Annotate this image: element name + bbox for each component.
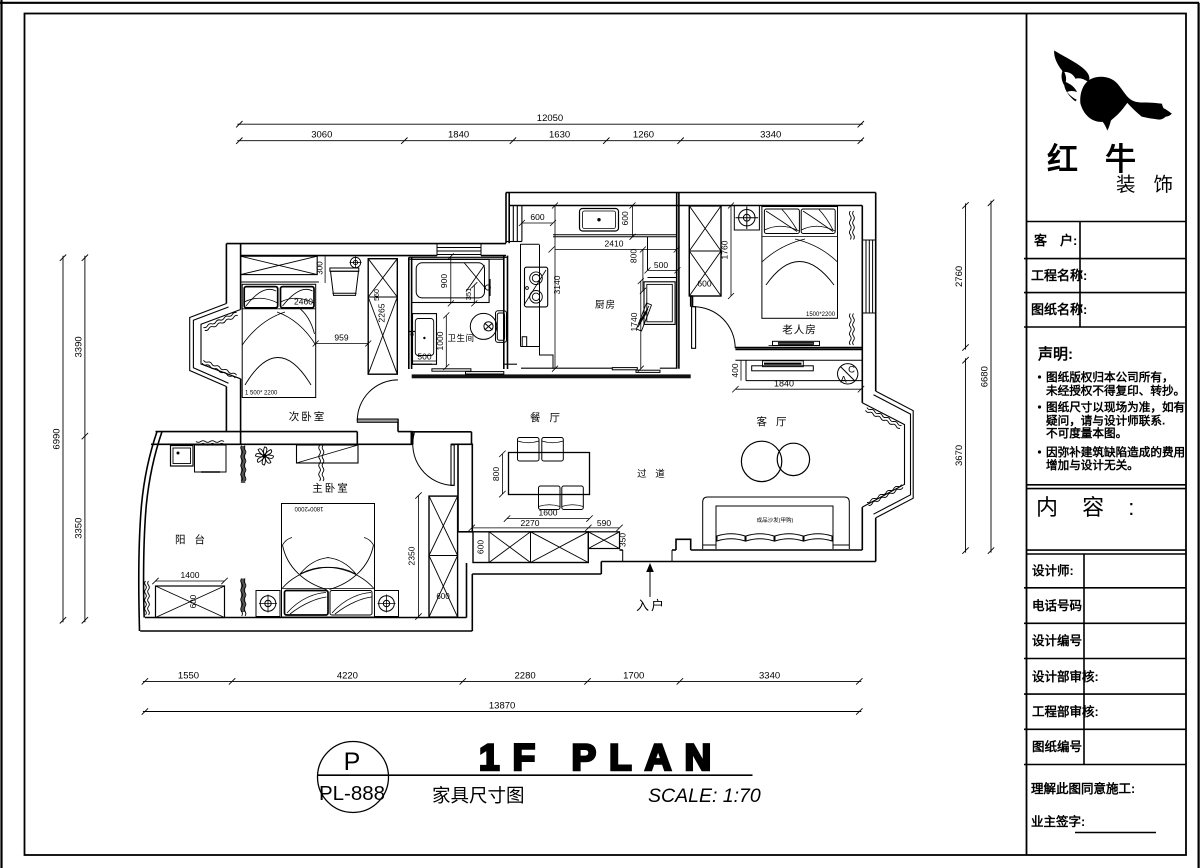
svg-text:900: 900 [439,274,449,288]
svg-text:红牛: 红牛 [1047,142,1163,177]
svg-text:阳 台: 阳 台 [175,533,208,546]
svg-text:600: 600 [476,540,486,554]
svg-text:1630: 1630 [549,130,570,141]
svg-text:4220: 4220 [337,670,358,681]
svg-text:600: 600 [530,212,544,222]
svg-text:800: 800 [628,249,638,263]
svg-text:电话号码: 电话号码 [1032,598,1082,613]
svg-text:主卧室: 主卧室 [312,482,350,495]
svg-text:3350: 3350 [73,518,84,539]
svg-text:300: 300 [316,261,325,275]
svg-text:400: 400 [730,363,740,377]
svg-text:家具尺寸图: 家具尺寸图 [432,785,525,806]
svg-text:1000: 1000 [435,331,445,350]
svg-text:600: 600 [620,211,630,225]
svg-text:装饰: 装饰 [1116,174,1191,196]
svg-text:3670: 3670 [954,445,965,466]
svg-text:声明:: 声明: [1037,345,1073,363]
svg-text:图纸尺寸以现场为准，如有: 图纸尺寸以现场为准，如有 [1046,400,1186,414]
svg-text:1400: 1400 [181,570,200,580]
svg-text:1F PLAN: 1F PLAN [479,737,724,778]
svg-text:因弥补建筑缺陷造成的费用: 因弥补建筑缺陷造成的费用 [1046,445,1185,459]
svg-text:2270: 2270 [521,518,540,528]
svg-text:过 道: 过 道 [637,468,668,480]
svg-text:客 厅: 客 厅 [757,415,790,428]
svg-text:设计部审核:: 设计部审核: [1032,669,1099,684]
svg-text:1700: 1700 [623,670,644,681]
svg-text:疑问，请与设计师联系.: 疑问，请与设计师联系. [1046,414,1165,428]
svg-text:P: P [344,748,361,776]
svg-text:PL-888: PL-888 [319,782,385,805]
svg-text:图纸版权归本公司所有，: 图纸版权归本公司所有， [1046,370,1174,384]
svg-text:12050: 12050 [537,113,563,124]
svg-text:800: 800 [491,467,501,481]
svg-text:600: 600 [697,279,711,289]
svg-text:2460: 2460 [294,297,313,307]
svg-text:6990: 6990 [52,428,63,449]
svg-text:600: 600 [189,594,198,608]
svg-text:设计编号: 设计编号 [1032,633,1082,648]
svg-text:2350: 2350 [407,546,417,565]
svg-text:1600: 1600 [539,508,558,518]
svg-text:3390: 3390 [73,336,84,357]
svg-text:A: A [840,375,847,386]
svg-text:2265: 2265 [377,303,387,322]
svg-text:600: 600 [436,592,450,601]
svg-text:工程名称:: 工程名称: [1031,268,1087,283]
svg-text:1 500* 2200: 1 500* 2200 [245,391,278,397]
svg-text:6680: 6680 [980,366,991,387]
svg-text:560: 560 [374,289,381,301]
svg-text:1760: 1760 [720,240,730,259]
svg-text:2410: 2410 [605,239,624,249]
svg-text:C: C [848,365,855,376]
svg-text:客 户:: 客 户: [1034,233,1077,248]
svg-text:卫生间: 卫生间 [447,333,474,343]
svg-text:餐 厅: 餐 厅 [530,411,563,424]
svg-text:1840: 1840 [774,379,794,389]
svg-text:工程部审核:: 工程部审核: [1032,704,1099,719]
svg-text:350: 350 [618,533,628,547]
svg-text:1260: 1260 [633,130,654,141]
svg-text:老人房: 老人房 [782,323,817,336]
svg-text:351: 351 [464,288,473,301]
svg-text:未经授权不得复印、转抄。: 未经授权不得复印、转抄。 [1045,384,1185,398]
svg-text:2280: 2280 [515,670,536,681]
svg-text:1500*2200: 1500*2200 [806,312,836,318]
svg-text:1740: 1740 [629,312,639,331]
svg-text:业主签字:: 业主签字: [1031,814,1085,829]
svg-text:次卧室: 次卧室 [289,410,327,423]
svg-text:厨房: 厨房 [595,299,616,311]
svg-text:590: 590 [597,518,611,528]
svg-text:1800*2000: 1800*2000 [294,505,324,511]
svg-text:13870: 13870 [489,701,515,712]
svg-text:1840: 1840 [448,130,469,141]
svg-text:理解此图同意施工:: 理解此图同意施工: [1031,781,1135,796]
svg-text:不可度量本图。: 不可度量本图。 [1046,426,1127,440]
svg-text:3060: 3060 [311,130,332,141]
svg-text:图纸编号: 图纸编号 [1032,739,1082,754]
svg-text:3340: 3340 [760,130,781,141]
svg-text:设计师:: 设计师: [1032,563,1074,578]
svg-text:959: 959 [334,333,348,343]
svg-text:内 容 :: 内 容 : [1036,495,1143,520]
svg-text:500: 500 [654,260,668,270]
svg-text:图纸名称:: 图纸名称: [1031,302,1087,317]
svg-text:SCALE: 1:70: SCALE: 1:70 [648,785,761,807]
svg-text:3340: 3340 [759,670,780,681]
svg-text:成品沙发(甲购): 成品沙发(甲购) [757,516,794,524]
svg-text:3140: 3140 [552,275,562,294]
svg-text:500: 500 [417,352,431,362]
svg-text:入户: 入户 [636,598,666,613]
svg-text:增加与设计无关。: 增加与设计无关。 [1046,458,1139,472]
svg-text:2760: 2760 [954,266,965,287]
svg-text:1550: 1550 [178,670,199,681]
